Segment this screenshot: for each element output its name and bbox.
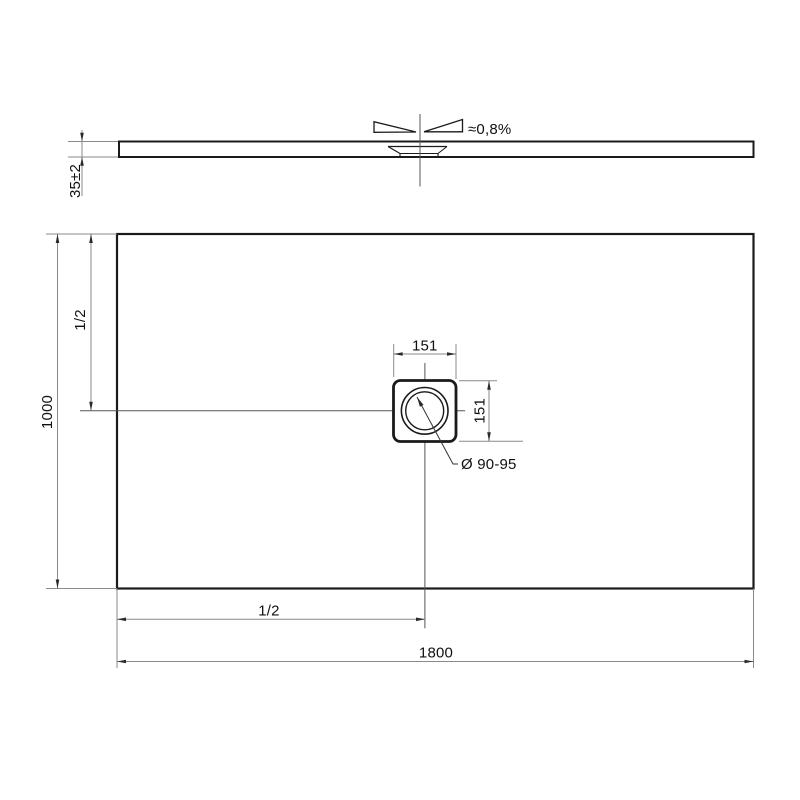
- thickness-arrow-top: [80, 133, 84, 142]
- slope-label: ≈0,8%: [468, 121, 511, 138]
- half-width-dimension: 1/2: [117, 603, 425, 622]
- tray-side-profile: [119, 142, 754, 158]
- half-depth-arrow-top: [89, 234, 93, 243]
- half-width-label: 1/2: [258, 603, 279, 620]
- side-view: ≈0,8% 35±2: [67, 114, 754, 198]
- drain-height-label: 151: [472, 398, 489, 424]
- thickness-dimension: 35±2: [67, 130, 118, 198]
- technical-drawing: ≈0,8% 35±2: [0, 0, 800, 800]
- width-dimension: 1800: [117, 589, 754, 669]
- half-width-arrow-right: [416, 618, 425, 622]
- half-depth-dimension: 1/2: [72, 234, 93, 411]
- depth-arrow-top: [56, 234, 60, 243]
- drain-diameter-label: Ø 90-95: [461, 456, 517, 473]
- drain-width-label: 151: [412, 338, 438, 355]
- plan-view: 1000 1/2 151 151: [39, 234, 754, 668]
- half-depth-label: 1/2: [72, 309, 89, 330]
- half-width-arrow-left: [117, 618, 126, 622]
- drawing-canvas: ≈0,8% 35±2: [0, 0, 800, 800]
- width-arrow-right: [745, 660, 754, 664]
- half-depth-arrow-bottom: [89, 402, 93, 411]
- width-arrow-left: [117, 660, 126, 664]
- slope-wedge-right: [424, 120, 463, 132]
- depth-label: 1000: [39, 395, 56, 429]
- width-label: 1800: [419, 645, 453, 662]
- thickness-label: 35±2: [67, 164, 84, 198]
- slope-wedge-left: [374, 122, 416, 133]
- depth-arrow-bottom: [56, 580, 60, 589]
